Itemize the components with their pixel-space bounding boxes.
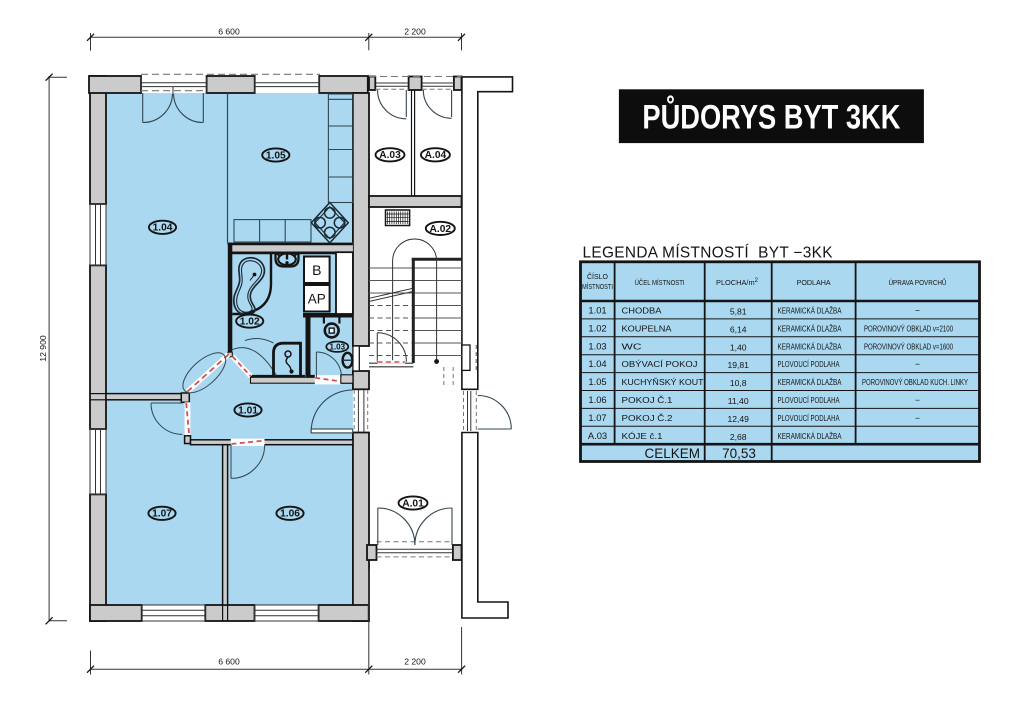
svg-text:MÍSTNOSTI: MÍSTNOSTI: [582, 282, 613, 291]
svg-text:AP: AP: [308, 291, 326, 306]
svg-text:1.04: 1.04: [588, 358, 606, 369]
svg-text:ÚČEL MÍSTNOSTI: ÚČEL MÍSTNOSTI: [635, 278, 685, 287]
svg-text:1.05: 1.05: [588, 376, 606, 387]
svg-text:CHODBA: CHODBA: [622, 307, 663, 316]
svg-text:1.02: 1.02: [588, 322, 606, 333]
svg-text:1.06: 1.06: [280, 509, 300, 520]
svg-text:WC: WC: [622, 342, 642, 351]
svg-text:KERAMICKÁ DLAŽBA: KERAMICKÁ DLAŽBA: [778, 307, 843, 316]
svg-text:POROVINOVÝ OBKLAD KUCH. LINKY: POROVINOVÝ OBKLAD KUCH. LINKY: [862, 378, 968, 387]
svg-text:2 200: 2 200: [404, 657, 426, 667]
svg-text:70,53: 70,53: [722, 446, 756, 461]
svg-text:PŮDORYS BYT 3KK: PŮDORYS BYT 3KK: [642, 96, 900, 137]
svg-text:6 600: 6 600: [218, 657, 240, 667]
svg-text:POKOJ Č.1: POKOJ Č.1: [622, 396, 674, 405]
svg-text:1.07: 1.07: [152, 509, 172, 520]
svg-text:6,14: 6,14: [730, 324, 747, 334]
svg-text:−: −: [915, 395, 920, 405]
svg-text:KERAMICKÁ DLAŽBA: KERAMICKÁ DLAŽBA: [778, 432, 843, 441]
svg-text:1.04: 1.04: [153, 223, 173, 234]
svg-text:PLOVOUCÍ PODLAHA: PLOVOUCÍ PODLAHA: [778, 414, 840, 423]
svg-text:−: −: [915, 306, 920, 316]
svg-text:5,81: 5,81: [730, 307, 747, 317]
svg-text:1.01: 1.01: [238, 405, 258, 416]
svg-text:KERAMICKÁ DLAŽBA: KERAMICKÁ DLAŽBA: [778, 378, 843, 387]
svg-text:1.07: 1.07: [588, 412, 606, 423]
svg-text:PLOVOUCÍ PODLAHA: PLOVOUCÍ PODLAHA: [778, 360, 840, 369]
svg-text:ČÍSLO: ČÍSLO: [587, 272, 608, 281]
svg-text:12 900: 12 900: [38, 335, 48, 362]
svg-text:10,8: 10,8: [730, 378, 747, 388]
svg-text:A.01: A.01: [402, 498, 424, 509]
svg-text:1.06: 1.06: [588, 394, 606, 405]
svg-text:OBÝVACÍ POKOJ: OBÝVACÍ POKOJ: [622, 360, 698, 369]
svg-text:KÓJE č.1: KÓJE č.1: [622, 432, 664, 441]
svg-text:POKOJ Č.2: POKOJ Č.2: [622, 414, 674, 423]
svg-text:2,68: 2,68: [730, 432, 747, 442]
svg-text:CELKEM: CELKEM: [644, 446, 700, 461]
svg-text:A.03: A.03: [379, 150, 401, 161]
svg-text:KUCHYŇSKÝ KOUT: KUCHYŇSKÝ KOUT: [622, 378, 704, 387]
svg-text:−: −: [915, 359, 920, 369]
svg-text:A.02: A.02: [430, 224, 452, 235]
svg-text:A.04: A.04: [425, 150, 447, 161]
svg-text:B: B: [312, 262, 321, 278]
svg-text:PODLAHA: PODLAHA: [797, 278, 831, 287]
svg-text:6 600: 6 600: [218, 27, 240, 37]
svg-text:KOUPELNA: KOUPELNA: [622, 324, 673, 333]
svg-text:−: −: [915, 413, 920, 423]
svg-text:19,81: 19,81: [727, 360, 749, 370]
svg-text:KERAMICKÁ DLAŽBA: KERAMICKÁ DLAŽBA: [778, 324, 843, 333]
svg-text:1.03: 1.03: [588, 340, 606, 351]
svg-text:1.05: 1.05: [266, 150, 286, 161]
svg-text:1.01: 1.01: [588, 305, 606, 316]
svg-text:ÚPRAVA POVRCHŮ: ÚPRAVA POVRCHŮ: [889, 278, 947, 287]
svg-text:2 200: 2 200: [404, 27, 426, 37]
svg-text:PLOCHA/m2: PLOCHA/m2: [716, 278, 759, 287]
svg-text:LEGENDA MÍSTNOSTÍ BYT −3KK: LEGENDA MÍSTNOSTÍ BYT −3KK: [583, 245, 834, 262]
svg-text:11,40: 11,40: [728, 396, 749, 406]
svg-text:1.03: 1.03: [330, 343, 346, 352]
svg-text:POROVINOVÝ OBKLAD v=2100: POROVINOVÝ OBKLAD v=2100: [864, 324, 953, 333]
svg-text:12,49: 12,49: [727, 414, 749, 424]
svg-text:POROVINOVÝ OBKLAD v=1600: POROVINOVÝ OBKLAD v=1600: [864, 342, 953, 351]
svg-text:PLOVOUCÍ PODLAHA: PLOVOUCÍ PODLAHA: [778, 396, 840, 405]
svg-text:1.02: 1.02: [240, 317, 260, 328]
svg-text:KERAMICKÁ DLAŽBA: KERAMICKÁ DLAŽBA: [778, 342, 843, 351]
svg-text:1,40: 1,40: [730, 342, 747, 352]
svg-text:A.03: A.03: [588, 430, 607, 441]
